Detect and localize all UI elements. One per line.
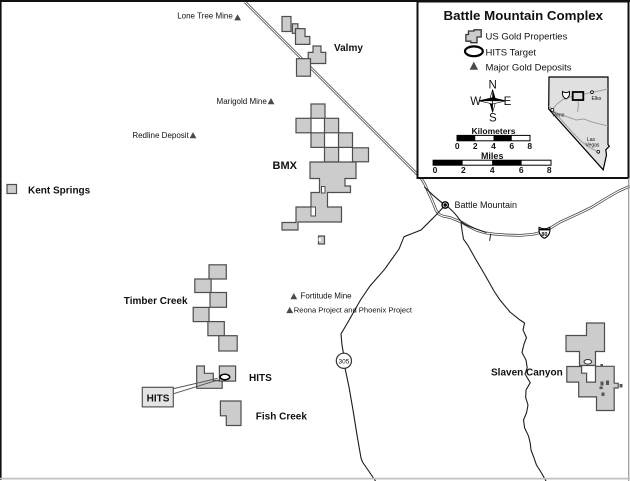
svg-text:Reno: Reno bbox=[553, 113, 565, 119]
svg-text:Elko: Elko bbox=[592, 96, 602, 102]
svg-text:Valmy: Valmy bbox=[334, 43, 363, 54]
svg-text:Fish Creek: Fish Creek bbox=[256, 411, 308, 422]
svg-text:HITS Target: HITS Target bbox=[486, 47, 537, 58]
svg-text:4: 4 bbox=[490, 165, 495, 175]
svg-text:Battle Mountain Complex: Battle Mountain Complex bbox=[444, 8, 604, 23]
svg-text:2: 2 bbox=[461, 165, 466, 175]
svg-text:Miles: Miles bbox=[481, 151, 504, 161]
svg-text:4: 4 bbox=[491, 141, 496, 151]
svg-text:0: 0 bbox=[433, 165, 438, 175]
svg-text:W: W bbox=[470, 96, 481, 108]
svg-text:6: 6 bbox=[519, 165, 524, 175]
svg-text:Vegas: Vegas bbox=[586, 143, 600, 149]
svg-text:Timber Creek: Timber Creek bbox=[124, 296, 188, 307]
svg-text:S: S bbox=[489, 112, 497, 124]
svg-text:Redline Deposit: Redline Deposit bbox=[132, 131, 189, 140]
svg-text:305: 305 bbox=[338, 358, 349, 365]
svg-text:N: N bbox=[488, 79, 496, 91]
svg-text:BMX: BMX bbox=[273, 160, 298, 172]
svg-text:6: 6 bbox=[509, 141, 514, 151]
svg-text:Reona Project and Phoenix Proj: Reona Project and Phoenix Project bbox=[294, 306, 413, 315]
svg-text:HITS: HITS bbox=[147, 393, 170, 404]
svg-text:Fortitude Mine: Fortitude Mine bbox=[301, 291, 353, 300]
svg-text:Kilometers: Kilometers bbox=[472, 126, 516, 136]
svg-text:US Gold Properties: US Gold Properties bbox=[486, 32, 568, 43]
svg-text:8: 8 bbox=[527, 141, 532, 151]
svg-text:80: 80 bbox=[541, 232, 547, 238]
svg-text:Kent Springs: Kent Springs bbox=[28, 185, 91, 196]
svg-text:Marigold Mine: Marigold Mine bbox=[217, 97, 268, 106]
svg-text:E: E bbox=[504, 96, 512, 108]
svg-text:Slaven Canyon: Slaven Canyon bbox=[491, 368, 563, 379]
svg-text:Battle Mountain: Battle Mountain bbox=[455, 200, 518, 210]
svg-text:HITS: HITS bbox=[249, 373, 272, 384]
svg-text:8: 8 bbox=[547, 165, 552, 175]
svg-text:0: 0 bbox=[455, 141, 460, 151]
svg-text:Lone Tree Mine: Lone Tree Mine bbox=[177, 12, 233, 21]
svg-text:Major Gold Deposits: Major Gold Deposits bbox=[486, 62, 572, 73]
svg-text:2: 2 bbox=[473, 141, 478, 151]
